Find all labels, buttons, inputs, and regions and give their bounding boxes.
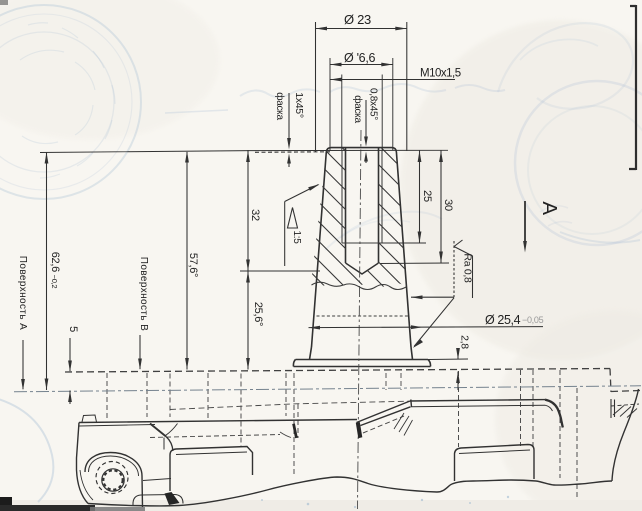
svg-text:1х45°: 1х45° [293, 92, 305, 118]
svg-text:32: 32 [249, 209, 261, 221]
svg-text:1:5: 1:5 [291, 230, 302, 244]
svg-text:Поверхность А: Поверхность А [17, 256, 28, 330]
svg-text:Ra 0,8: Ra 0,8 [462, 253, 474, 283]
svg-text:Ø 25,4: Ø 25,4 [485, 313, 521, 327]
svg-text:2,8: 2,8 [459, 335, 471, 349]
svg-text:−0,05: −0,05 [522, 315, 544, 325]
svg-text:Ø '6,6: Ø '6,6 [344, 51, 376, 65]
svg-text:62,6 −0,2: 62,6 −0,2 [49, 252, 61, 289]
svg-text:57,6°: 57,6° [187, 253, 199, 277]
svg-text:фаска: фаска [274, 92, 286, 120]
svg-text:А: А [538, 201, 561, 215]
svg-text:фаска: фаска [352, 95, 364, 123]
svg-text:Поверхность В: Поверхность В [138, 257, 149, 331]
svg-text:0,8х45°: 0,8х45° [368, 88, 379, 120]
svg-text:М10х1,5: М10х1,5 [420, 68, 461, 80]
svg-text:25,6°: 25,6° [252, 302, 264, 326]
svg-text:30: 30 [442, 199, 454, 211]
svg-text:5: 5 [67, 326, 79, 332]
svg-text:Ø 23: Ø 23 [344, 12, 371, 27]
svg-text:25: 25 [421, 190, 433, 202]
